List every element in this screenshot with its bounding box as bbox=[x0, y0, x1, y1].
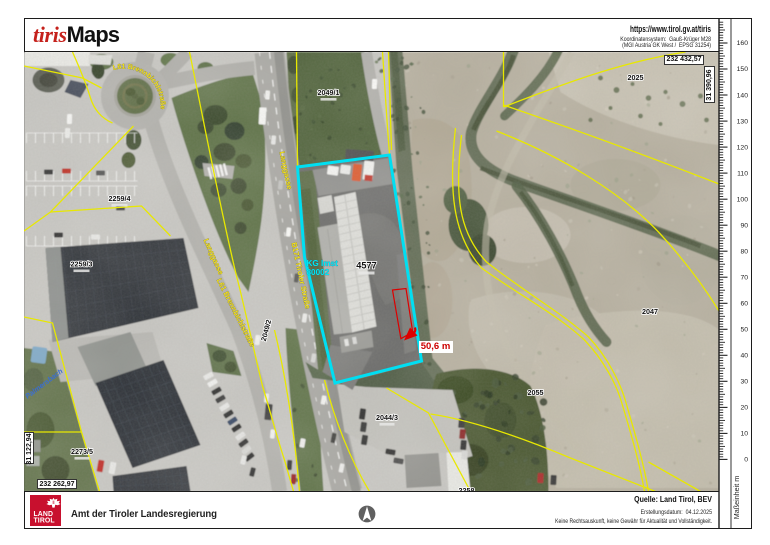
svg-text:30: 30 bbox=[740, 378, 748, 385]
svg-text:10: 10 bbox=[740, 430, 748, 437]
svg-text:130: 130 bbox=[737, 118, 749, 125]
svg-text:80002: 80002 bbox=[306, 268, 329, 277]
svg-text:2025: 2025 bbox=[627, 73, 643, 82]
svg-text:40: 40 bbox=[740, 352, 748, 359]
svg-text:2044/3: 2044/3 bbox=[376, 413, 398, 422]
svg-text:110: 110 bbox=[737, 170, 748, 177]
svg-text:2273/5: 2273/5 bbox=[71, 447, 93, 456]
svg-text:70: 70 bbox=[740, 274, 748, 281]
svg-text:2055: 2055 bbox=[527, 388, 543, 397]
svg-text:2049/1: 2049/1 bbox=[317, 88, 339, 97]
svg-text:20: 20 bbox=[740, 404, 748, 411]
svg-text:KG Imst: KG Imst bbox=[306, 259, 338, 268]
svg-text:120: 120 bbox=[737, 144, 749, 151]
svg-text:Maßeinheit m: Maßeinheit m bbox=[732, 475, 741, 519]
svg-text:160: 160 bbox=[737, 40, 749, 47]
svg-text:100: 100 bbox=[737, 196, 749, 203]
svg-text:2047: 2047 bbox=[642, 307, 658, 316]
svg-text:140: 140 bbox=[737, 92, 749, 99]
svg-text:2259/4: 2259/4 bbox=[108, 194, 130, 203]
svg-text:4577: 4577 bbox=[356, 261, 376, 271]
svg-text:2259/3: 2259/3 bbox=[70, 260, 92, 269]
svg-text:0: 0 bbox=[744, 456, 748, 463]
svg-text:80: 80 bbox=[740, 248, 748, 255]
svg-text:150: 150 bbox=[737, 66, 749, 73]
svg-text:60: 60 bbox=[740, 300, 748, 307]
svg-text:90: 90 bbox=[740, 222, 748, 229]
svg-text:TIROL: TIROL bbox=[34, 518, 55, 525]
svg-text:50: 50 bbox=[740, 326, 748, 333]
